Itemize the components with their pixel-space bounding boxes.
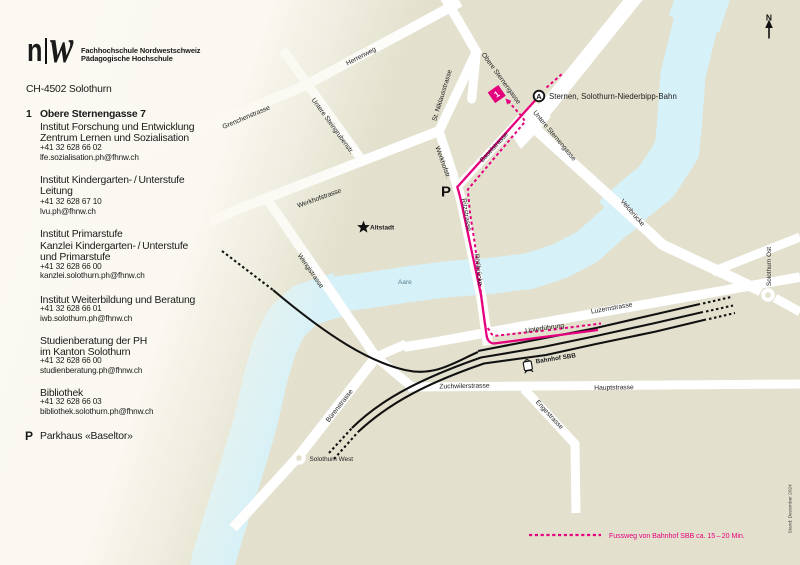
- svg-text:Aare: Aare: [398, 279, 412, 286]
- svg-text:Solothurn West: Solothurn West: [310, 456, 354, 463]
- svg-text:Zuchwilerstrasse: Zuchwilerstrasse: [439, 383, 490, 391]
- svg-text:Solothurn Ost: Solothurn Ost: [766, 247, 773, 286]
- svg-text:Altstadt: Altstadt: [370, 225, 395, 232]
- svg-text:Sternen, Solothurn-Niederbipp-: Sternen, Solothurn-Niederbipp-Bahn: [549, 92, 677, 101]
- svg-text:Fussweg von Bahnhof SBB ca. 15: Fussweg von Bahnhof SBB ca. 15 – 20 Min.: [609, 532, 745, 540]
- svg-text:Hauptstrasse: Hauptstrasse: [594, 384, 634, 392]
- svg-text:A: A: [536, 92, 542, 101]
- svg-text:P: P: [441, 184, 451, 201]
- svg-text:Stand: Dezember 2024: Stand: Dezember 2024: [788, 484, 794, 534]
